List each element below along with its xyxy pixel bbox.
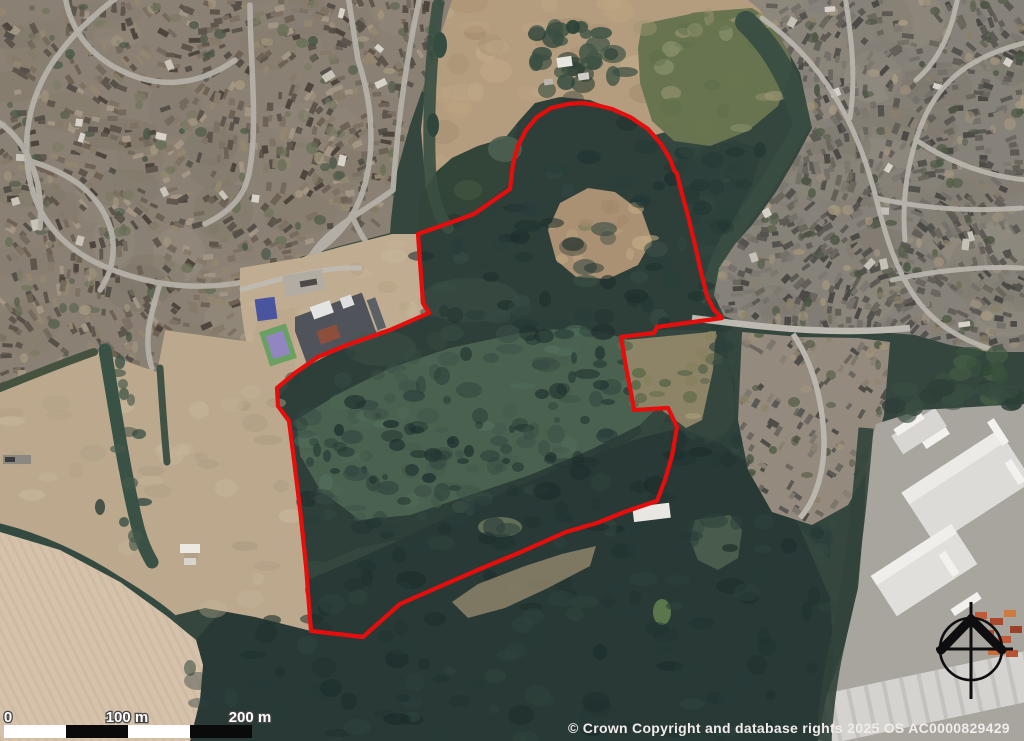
svg-text:100 m: 100 m xyxy=(106,709,149,726)
svg-text:0: 0 xyxy=(4,709,12,726)
svg-text:200 m: 200 m xyxy=(229,709,272,726)
svg-text:© Crown Copyright and database: © Crown Copyright and database rights 20… xyxy=(568,720,1010,736)
